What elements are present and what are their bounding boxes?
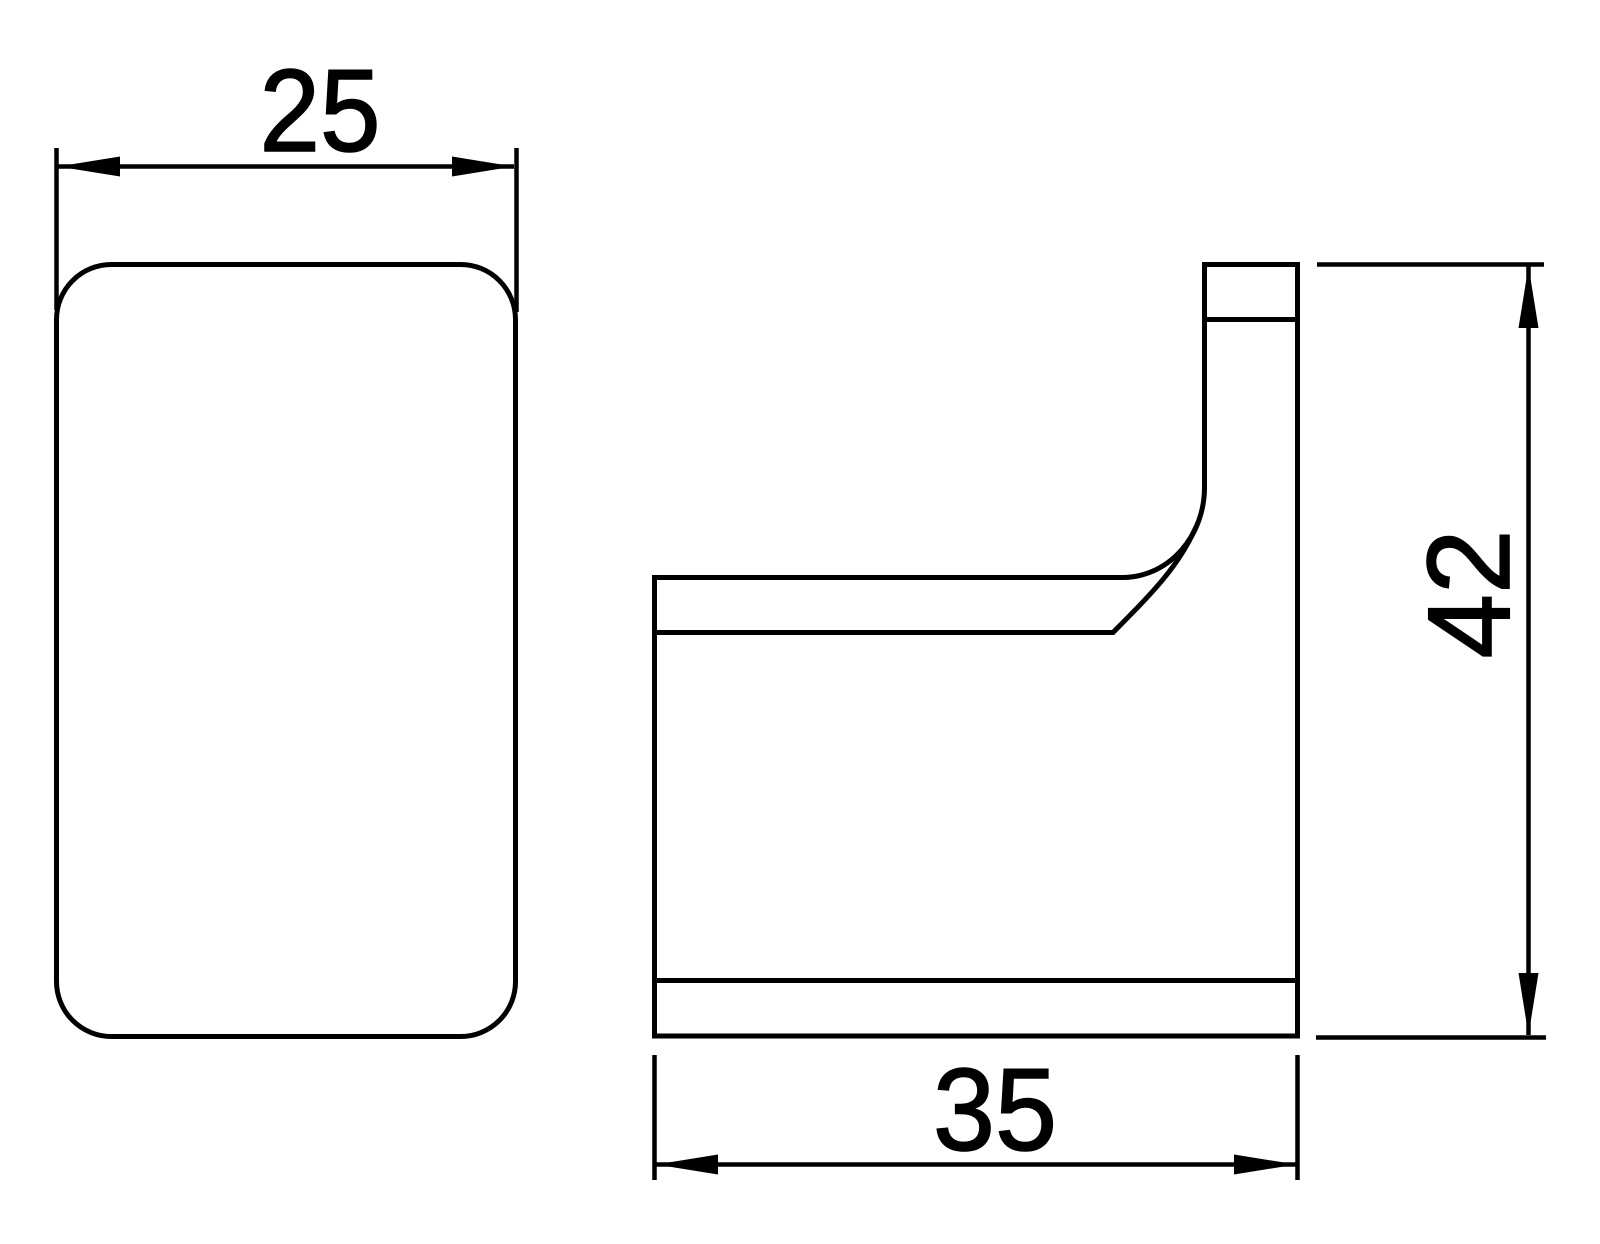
svg-text:42: 42	[1403, 530, 1534, 659]
svg-text:35: 35	[933, 1044, 1057, 1175]
svg-text:25: 25	[260, 45, 381, 176]
